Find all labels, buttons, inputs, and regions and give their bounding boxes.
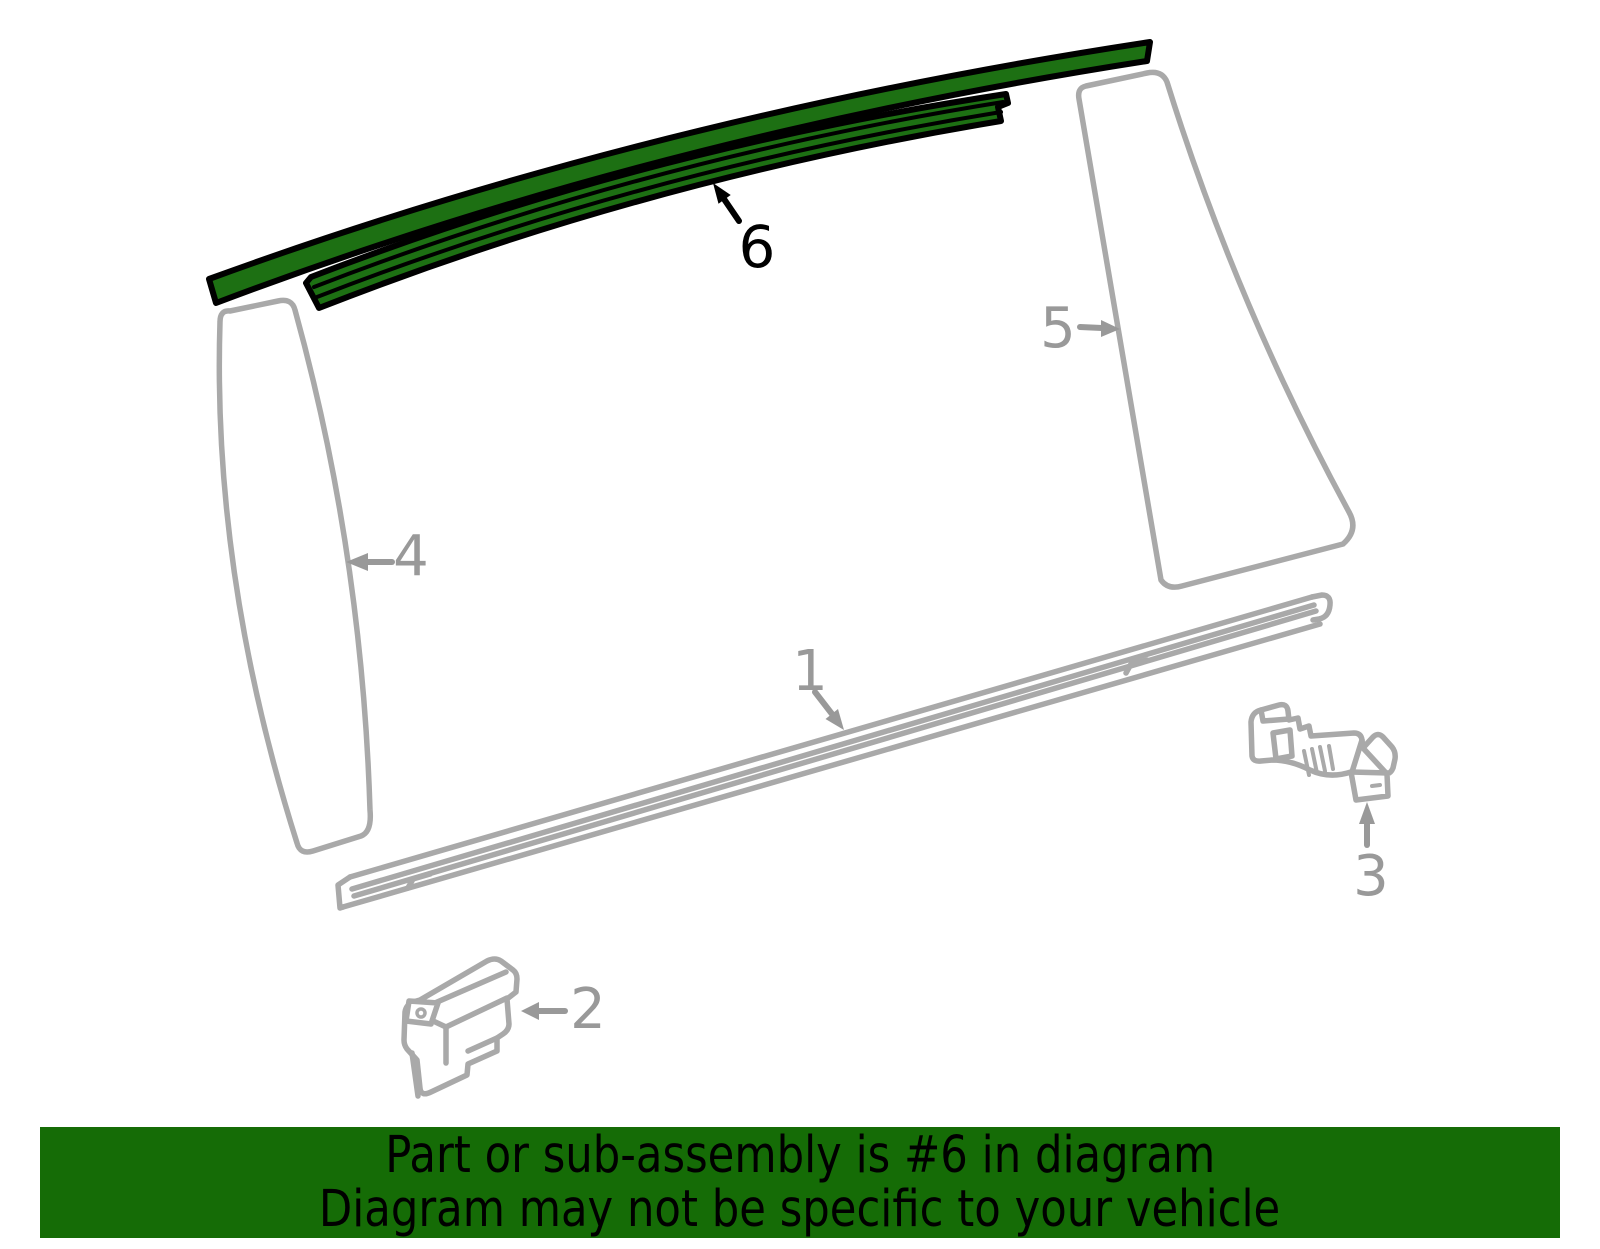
belt-lower-line [354, 611, 1316, 896]
part-5-arrow-line [1080, 327, 1102, 328]
part-3-arrowhead-icon [1359, 802, 1375, 824]
parts-diagram-page: 1 2 3 4 5 6 Part or sub-assembly is #6 i… [0, 0, 1600, 1249]
belt-bottom-edge [343, 624, 1320, 907]
part-6-highlighted-molding [209, 42, 1150, 308]
part-5-quarter-glass [1079, 72, 1353, 587]
clip2-tab [406, 1001, 438, 1024]
part-6-arrow-line [724, 199, 739, 221]
callouts-gray: 1 2 3 4 5 [346, 296, 1389, 1042]
part-6-label: 6 [739, 213, 776, 281]
part-4-pillar-applique [219, 300, 370, 852]
clip3-dash [1372, 785, 1380, 786]
notice-banner: Part or sub-assembly is #6 in diagram Di… [40, 1127, 1560, 1238]
parts-diagram: 1 2 3 4 5 6 [0, 0, 1600, 1249]
clip3-fold-c [1351, 772, 1388, 773]
part-3-label: 3 [1353, 844, 1389, 909]
part-1-label: 1 [792, 639, 828, 704]
part-6-callout: 6 [713, 183, 775, 281]
callout-arrow-lines [366, 327, 1367, 1011]
belt-upper-line [352, 605, 1314, 889]
clip2-body [404, 959, 517, 1094]
part-2-arrowhead-icon [521, 1002, 539, 1020]
part-1-belt-molding [338, 595, 1330, 908]
belt-top-edge [350, 597, 1312, 877]
part-4-label: 4 [393, 524, 429, 589]
part-3-clip [1251, 705, 1395, 800]
part-2-label: 2 [570, 977, 606, 1042]
banner-line-1: Part or sub-assembly is #6 in diagram [385, 1129, 1215, 1183]
banner-line-2: Diagram may not be specific to your vehi… [319, 1183, 1280, 1237]
part-2-clip [404, 959, 517, 1096]
molding-lower-band [306, 94, 1008, 308]
part-5-label: 5 [1040, 296, 1076, 361]
